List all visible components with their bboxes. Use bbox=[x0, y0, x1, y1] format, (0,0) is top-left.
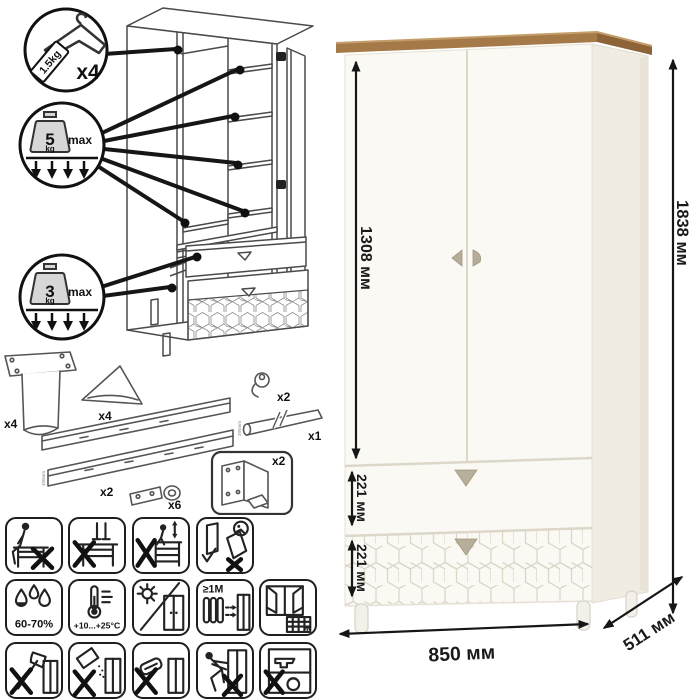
care-icon-carry-doors-upright bbox=[196, 517, 254, 574]
corner-cover-icon bbox=[82, 366, 142, 404]
dim-bottom-drawer: 221 мм bbox=[354, 544, 370, 592]
hanger-count-label: x4 bbox=[76, 61, 100, 84]
rod-length-label: 395mm bbox=[237, 421, 242, 436]
bracket-count-label: x2 bbox=[272, 454, 286, 468]
rod-count-label: x1 bbox=[308, 429, 322, 443]
care-icon-no-climbing bbox=[132, 517, 190, 574]
humidity-label: 60-70% bbox=[15, 619, 53, 631]
slide-length-label: 450mm bbox=[41, 471, 46, 486]
hinge-count-label: x6 bbox=[168, 498, 182, 512]
shelf-load-badge: 5 kg max bbox=[20, 103, 104, 187]
wardrobe-line-drawing bbox=[127, 8, 313, 356]
assembly-diagram: 1.5kg x4 5 kg max bbox=[0, 0, 330, 515]
slide-count-label: x2 bbox=[100, 485, 114, 499]
dim-width: 850 мм bbox=[428, 642, 496, 667]
min-distance-label: ≥1M bbox=[203, 584, 224, 596]
care-icon-no-solvents bbox=[132, 642, 190, 699]
leg-count-label: x4 bbox=[4, 417, 18, 431]
rod-holder-count-label: x2 bbox=[277, 390, 291, 404]
care-icon-no-standing bbox=[68, 517, 126, 574]
temperature-label: +10...+25°C bbox=[74, 621, 121, 631]
hanger-capacity-badge: 1.5kg x4 bbox=[25, 9, 107, 91]
hardware-parts: x4 x4 x2 x1 395mm bbox=[4, 352, 322, 514]
care-icon-no-direct-sunlight bbox=[132, 579, 190, 636]
care-icon-no-abrasives bbox=[68, 642, 126, 699]
shelf-load-max: max bbox=[68, 133, 92, 147]
wardrobe-photo bbox=[336, 32, 652, 633]
care-icon-temperature-range: +10...+25°C bbox=[68, 579, 126, 636]
care-icon-keep-1m-from-heaters: ≥1M bbox=[196, 579, 254, 636]
drawer-load-badge: 3 kg max bbox=[20, 255, 104, 339]
drawer-slides-icon bbox=[42, 398, 233, 486]
cover-count-label: x4 bbox=[98, 409, 112, 423]
product-sheet: 1.5kg x4 5 kg max bbox=[0, 0, 694, 700]
drawer-load-unit: kg bbox=[45, 297, 54, 306]
care-icon-ventilate-room: 21 bbox=[259, 579, 317, 636]
rod-holder-icon bbox=[252, 373, 269, 397]
dim-door-height: 1308 мм bbox=[357, 226, 374, 290]
care-icon-no-sharp-tools bbox=[5, 642, 63, 699]
care-icon-humidity-range: 60-70% bbox=[5, 579, 63, 636]
calendar-day-label: 21 bbox=[305, 627, 310, 632]
shelf-load-unit: kg bbox=[45, 145, 54, 154]
care-icon-no-sitting bbox=[5, 517, 63, 574]
dim-top-drawer: 221 мм bbox=[354, 474, 370, 522]
wardrobe-render: 1308 мм 1838 мм 221 мм 221 мм 850 мм 511… bbox=[330, 0, 694, 700]
care-icon-do-not-drag bbox=[196, 642, 254, 699]
dim-total-height: 1838 мм bbox=[673, 200, 691, 266]
care-icon-no-heavy-objects bbox=[259, 642, 317, 699]
drawer-load-max: max bbox=[68, 285, 92, 299]
